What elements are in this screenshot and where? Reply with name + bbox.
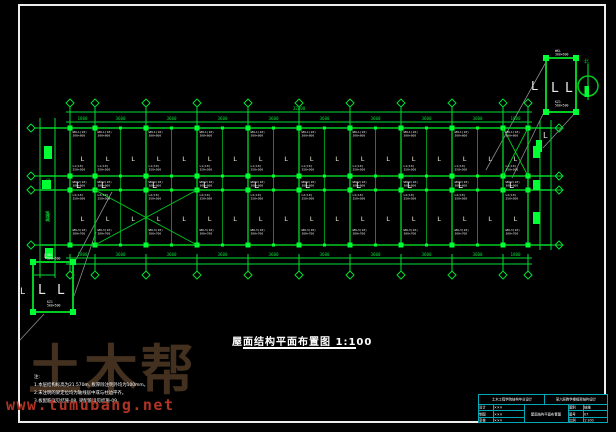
svg-text:300×600: 300×600 bbox=[506, 183, 519, 187]
svg-text:300×700: 300×700 bbox=[302, 231, 315, 235]
svg-text:3600: 3600 bbox=[472, 116, 483, 121]
svg-text:300×600: 300×600 bbox=[251, 133, 264, 137]
svg-text:L: L bbox=[412, 155, 416, 163]
svg-text:250×500: 250×500 bbox=[98, 196, 111, 200]
org-name: 土木工程学院结构毕业设计 bbox=[491, 397, 531, 402]
svg-text:L: L bbox=[284, 155, 288, 163]
svg-text:L: L bbox=[551, 81, 559, 96]
svg-text:L: L bbox=[514, 155, 518, 163]
beam-labels: WKL1(10)300×600WKL1(10)300×600WKL1(10)30… bbox=[73, 130, 521, 235]
field-label: 图别 bbox=[569, 405, 576, 410]
title-block-project-cell: 某六层教学楼框架结构设计 bbox=[545, 395, 607, 404]
title-block-row: 比例 1:100 bbox=[569, 418, 607, 423]
svg-text:L: L bbox=[488, 215, 492, 223]
svg-text:L: L bbox=[259, 215, 263, 223]
watermark-url: www.tumubang.net bbox=[6, 396, 175, 414]
svg-text:250×500: 250×500 bbox=[302, 196, 315, 200]
svg-text:250×500: 250×500 bbox=[73, 167, 86, 171]
column-detail-top-right: LLWKL300×600KZ1500×500 bbox=[543, 49, 579, 115]
svg-text:L: L bbox=[437, 215, 441, 223]
field-label: 图号 bbox=[569, 412, 576, 417]
svg-text:300×600: 300×600 bbox=[73, 183, 86, 187]
svg-text:300×600: 300×600 bbox=[555, 53, 569, 57]
plan-grid bbox=[40, 128, 552, 245]
note-line: 1.本层结构标高为21.570m, 板厚除注明外均为100mm。 bbox=[34, 374, 241, 382]
svg-text:3600: 3600 bbox=[115, 252, 126, 257]
svg-text:300×700: 300×700 bbox=[73, 231, 86, 235]
svg-text:3600: 3600 bbox=[319, 252, 330, 257]
field-label: 审核 bbox=[479, 418, 486, 423]
svg-text:L: L bbox=[361, 155, 365, 163]
field-value: 07 bbox=[584, 412, 588, 416]
field-value: ××× bbox=[494, 412, 502, 416]
svg-text:L: L bbox=[233, 215, 237, 223]
svg-text:L: L bbox=[386, 215, 390, 223]
svg-text:L: L bbox=[208, 155, 212, 163]
title-block: 土木工程学院结构毕业设计 某六层教学楼框架结构设计 设计 ××× 制图 ××× … bbox=[478, 394, 608, 423]
svg-text:250×500: 250×500 bbox=[200, 196, 213, 200]
field-value: ××× bbox=[494, 406, 502, 410]
svg-text:1800: 1800 bbox=[510, 116, 521, 121]
svg-text:300×700: 300×700 bbox=[455, 231, 468, 235]
svg-text:L: L bbox=[106, 155, 110, 163]
notes-block: 注: 1.本层结构标高为21.570m, 板厚除注明外均为100mm。 2.未注… bbox=[34, 366, 241, 398]
svg-text:300×700: 300×700 bbox=[404, 231, 417, 235]
svg-text:L: L bbox=[131, 215, 135, 223]
svg-text:3600: 3600 bbox=[268, 116, 279, 121]
svg-text:3600: 3600 bbox=[166, 252, 177, 257]
svg-text:250×500: 250×500 bbox=[353, 196, 366, 200]
plan-title-underline bbox=[243, 347, 356, 349]
svg-text:L: L bbox=[57, 283, 65, 298]
svg-text:250×500: 250×500 bbox=[251, 167, 264, 171]
svg-text:L: L bbox=[131, 155, 135, 163]
svg-text:250×500: 250×500 bbox=[404, 167, 417, 171]
title-block-signatures: 设计 ××× 制图 ××× 审核 ××× bbox=[479, 405, 525, 423]
title-block-drawing-name-cell: 屋面结构平面布置图 bbox=[525, 405, 569, 423]
drawing-name: 屋面结构平面布置图 bbox=[531, 412, 561, 417]
svg-text:8400: 8400 bbox=[45, 210, 51, 221]
field-label: 比例 bbox=[569, 418, 576, 423]
svg-text:300×700: 300×700 bbox=[200, 231, 213, 235]
svg-text:L: L bbox=[182, 155, 186, 163]
svg-text:3600: 3600 bbox=[115, 116, 126, 121]
plan-title: 屋面结构平面布置图 1:100 bbox=[232, 333, 368, 348]
svg-text:250×500: 250×500 bbox=[200, 167, 213, 171]
svg-text:L: L bbox=[81, 155, 85, 163]
svg-text:300×700: 300×700 bbox=[98, 231, 111, 235]
svg-text:300×700: 300×700 bbox=[149, 231, 162, 235]
svg-text:250×500: 250×500 bbox=[455, 196, 468, 200]
svg-text:300×600: 300×600 bbox=[98, 133, 111, 137]
title-block-top-band: 土木工程学院结构毕业设计 某六层教学楼框架结构设计 bbox=[479, 395, 607, 405]
svg-text:300×600: 300×600 bbox=[98, 183, 111, 187]
svg-text:250×500: 250×500 bbox=[149, 196, 162, 200]
svg-text:L: L bbox=[488, 155, 492, 163]
svg-text:250×500: 250×500 bbox=[251, 196, 264, 200]
svg-text:3600: 3600 bbox=[217, 252, 228, 257]
svg-text:250×500: 250×500 bbox=[302, 167, 315, 171]
note-line-text: 2.未注明的梁定位均为轴线居中或与柱边平齐。 bbox=[34, 389, 126, 395]
svg-text:L: L bbox=[335, 215, 339, 223]
svg-text:L: L bbox=[531, 79, 538, 93]
svg-text:L: L bbox=[463, 215, 467, 223]
svg-text:300×600: 300×600 bbox=[149, 133, 162, 137]
svg-text:L: L bbox=[386, 155, 390, 163]
notes-heading: 注: bbox=[34, 366, 241, 374]
svg-text:1800: 1800 bbox=[510, 252, 521, 257]
svg-text:300×600: 300×600 bbox=[200, 183, 213, 187]
svg-text:300×600: 300×600 bbox=[455, 133, 468, 137]
svg-text:L: L bbox=[335, 155, 339, 163]
dimension-bottom: 1800360036003600360036003600360036001800 bbox=[66, 252, 532, 279]
svg-text:L: L bbox=[361, 215, 365, 223]
leader-lines bbox=[20, 62, 576, 340]
notes-heading-text: 注: bbox=[34, 373, 40, 379]
field-value: 1:100 bbox=[584, 418, 594, 422]
svg-text:3600: 3600 bbox=[421, 116, 432, 121]
svg-text:L: L bbox=[310, 215, 314, 223]
svg-text:300×600: 300×600 bbox=[353, 133, 366, 137]
svg-text:32400: 32400 bbox=[293, 106, 306, 111]
svg-text:250×500: 250×500 bbox=[73, 196, 86, 200]
svg-text:250×500: 250×500 bbox=[353, 167, 366, 171]
dimension-top: 1800360036003600360036003600360036001800… bbox=[66, 99, 532, 126]
svg-text:L: L bbox=[543, 131, 548, 140]
field-value: 结施 bbox=[584, 405, 591, 410]
cad-sheet: 土木帮 180036003600360036003600360036003600… bbox=[0, 0, 616, 432]
svg-text:3600: 3600 bbox=[370, 252, 381, 257]
title-block-row: 审核 ××× bbox=[479, 418, 524, 423]
north-arrow: 北 bbox=[578, 58, 598, 100]
svg-text:3600: 3600 bbox=[319, 116, 330, 121]
svg-text:L: L bbox=[81, 215, 85, 223]
svg-text:300×700: 300×700 bbox=[353, 231, 366, 235]
svg-text:L: L bbox=[437, 155, 441, 163]
svg-text:1800: 1800 bbox=[77, 116, 88, 121]
svg-text:L: L bbox=[284, 215, 288, 223]
svg-text:L: L bbox=[259, 155, 263, 163]
svg-text:300×700: 300×700 bbox=[506, 231, 519, 235]
svg-text:3600: 3600 bbox=[472, 252, 483, 257]
svg-text:500×500: 500×500 bbox=[555, 104, 569, 108]
svg-text:300×600: 300×600 bbox=[404, 133, 417, 137]
svg-text:L: L bbox=[157, 155, 161, 163]
svg-text:1800: 1800 bbox=[77, 252, 88, 257]
field-value: ××× bbox=[494, 418, 502, 422]
svg-text:L: L bbox=[412, 215, 416, 223]
title-block-body: 设计 ××× 制图 ××× 审核 ××× 屋面结构平面布置图 图别 结施 bbox=[479, 405, 607, 423]
svg-text:250×500: 250×500 bbox=[149, 167, 162, 171]
svg-text:250×500: 250×500 bbox=[506, 167, 519, 171]
svg-text:300×600: 300×600 bbox=[251, 183, 264, 187]
svg-text:300×600: 300×600 bbox=[404, 183, 417, 187]
svg-text:300×600: 300×600 bbox=[506, 133, 519, 137]
svg-text:L: L bbox=[157, 215, 161, 223]
field-label: 制图 bbox=[479, 412, 486, 417]
svg-text:250×500: 250×500 bbox=[404, 196, 417, 200]
column-detail-bottom-left: LLWKL300×600KZ1500×500 bbox=[30, 253, 76, 315]
svg-text:300×600: 300×600 bbox=[455, 183, 468, 187]
svg-text:300×600: 300×600 bbox=[302, 133, 315, 137]
svg-text:L: L bbox=[514, 215, 518, 223]
note-line-text: 1.本层结构标高为21.570m, 板厚除注明外均为100mm。 bbox=[34, 381, 148, 387]
project-name: 某六层教学楼框架结构设计 bbox=[556, 397, 596, 402]
svg-text:L: L bbox=[310, 155, 314, 163]
svg-text:L: L bbox=[208, 215, 212, 223]
svg-text:500×500: 500×500 bbox=[47, 304, 61, 308]
title-block-meta: 图别 结施 图号 07 比例 1:100 bbox=[569, 405, 607, 423]
svg-text:3600: 3600 bbox=[217, 116, 228, 121]
svg-text:250×500: 250×500 bbox=[506, 196, 519, 200]
svg-text:L: L bbox=[20, 287, 25, 297]
svg-text:L: L bbox=[233, 155, 237, 163]
svg-text:L: L bbox=[565, 81, 573, 96]
svg-text:300×600: 300×600 bbox=[353, 183, 366, 187]
svg-text:L: L bbox=[38, 283, 46, 298]
svg-text:300×600: 300×600 bbox=[47, 257, 61, 261]
svg-text:300×700: 300×700 bbox=[251, 231, 264, 235]
svg-text:300×600: 300×600 bbox=[73, 133, 86, 137]
svg-text:3600: 3600 bbox=[166, 116, 177, 121]
svg-text:北: 北 bbox=[584, 58, 589, 65]
svg-text:3600: 3600 bbox=[268, 252, 279, 257]
svg-text:3600: 3600 bbox=[370, 116, 381, 121]
svg-text:250×500: 250×500 bbox=[98, 167, 111, 171]
svg-text:300×600: 300×600 bbox=[302, 183, 315, 187]
svg-text:300×600: 300×600 bbox=[200, 133, 213, 137]
svg-text:L: L bbox=[106, 215, 110, 223]
svg-text:L: L bbox=[463, 155, 467, 163]
dimension-right: L bbox=[533, 120, 563, 250]
title-block-org-cell: 土木工程学院结构毕业设计 bbox=[479, 395, 545, 404]
svg-text:300×600: 300×600 bbox=[149, 183, 162, 187]
svg-text:3600: 3600 bbox=[421, 252, 432, 257]
field-label: 设计 bbox=[479, 405, 486, 410]
svg-text:L: L bbox=[182, 215, 186, 223]
svg-text:250×500: 250×500 bbox=[455, 167, 468, 171]
